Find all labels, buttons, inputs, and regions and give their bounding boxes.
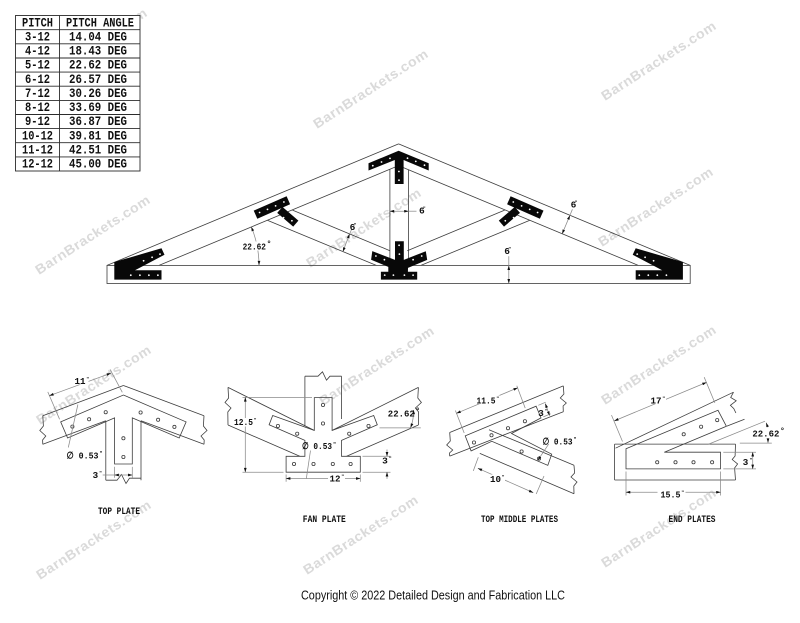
svg-text:4-12: 4-12 [25, 44, 50, 59]
svg-text:″: ″ [662, 396, 665, 402]
svg-text:6-12: 6-12 [25, 72, 50, 87]
svg-text:39.81 DEG: 39.81 DEG [69, 128, 127, 143]
svg-text:7-12: 7-12 [25, 86, 50, 101]
svg-text:22.62: 22.62 [388, 408, 415, 419]
svg-text:8-12: 8-12 [25, 100, 50, 115]
svg-text:FAN PLATE: FAN PLATE [303, 514, 346, 526]
svg-text:26.57 DEG: 26.57 DEG [69, 72, 127, 87]
svg-text:TOP PLATE: TOP PLATE [98, 506, 140, 518]
svg-text:″: ″ [502, 474, 505, 480]
svg-text:″: ″ [354, 222, 357, 228]
svg-text:22.62: 22.62 [752, 428, 779, 439]
svg-text:TOP MIDDLE PLATES: TOP MIDDLE PLATES [481, 514, 558, 526]
svg-text:12.5: 12.5 [234, 417, 253, 428]
svg-text:9-12: 9-12 [25, 114, 50, 129]
svg-text:22.62 DEG: 22.62 DEG [69, 58, 127, 73]
svg-text:″: ″ [496, 396, 499, 402]
svg-text:°: ° [415, 407, 420, 416]
svg-text:18.43 DEG: 18.43 DEG [69, 44, 127, 59]
svg-text:″: ″ [508, 247, 511, 253]
svg-text:∅ 0.53: ∅ 0.53 [302, 441, 332, 452]
svg-text:″: ″ [575, 200, 578, 206]
svg-text:Copyright © 2022 Detailed Desi: Copyright © 2022 Detailed Design and Fab… [301, 588, 565, 603]
svg-text:END PLATES: END PLATES [669, 514, 716, 526]
svg-text:17: 17 [651, 395, 662, 406]
svg-text:∅ 0.53: ∅ 0.53 [67, 451, 99, 462]
svg-text:PITCH: PITCH [22, 16, 53, 31]
svg-text:3: 3 [743, 457, 749, 468]
svg-text:5-12: 5-12 [25, 58, 50, 73]
svg-text:″: ″ [99, 471, 102, 477]
svg-text:3-12: 3-12 [25, 29, 50, 44]
svg-text:″: ″ [100, 451, 103, 457]
svg-text:″: ″ [389, 456, 392, 462]
svg-text:22.62: 22.62 [243, 241, 267, 252]
svg-text:3: 3 [538, 408, 544, 419]
svg-text:″: ″ [545, 408, 548, 414]
svg-text:11-12: 11-12 [22, 142, 53, 157]
svg-text:10-12: 10-12 [22, 128, 53, 143]
svg-text:″: ″ [574, 437, 577, 443]
svg-text:3: 3 [382, 455, 388, 466]
svg-text:42.51 DEG: 42.51 DEG [69, 142, 127, 157]
svg-text:°: ° [267, 240, 272, 249]
svg-text:12-12: 12-12 [22, 157, 53, 172]
svg-text:″: ″ [86, 377, 89, 383]
svg-text:″: ″ [254, 418, 257, 424]
svg-text:″: ″ [681, 490, 684, 496]
svg-text:PITCH ANGLE: PITCH ANGLE [66, 16, 134, 31]
svg-text:11: 11 [75, 376, 86, 387]
svg-text:3: 3 [92, 470, 98, 481]
svg-text:30.26 DEG: 30.26 DEG [69, 86, 127, 101]
svg-text:∅ 0.53: ∅ 0.53 [543, 436, 573, 447]
svg-text:10: 10 [490, 474, 501, 485]
svg-text:36.87 DEG: 36.87 DEG [69, 114, 127, 129]
svg-text:″: ″ [333, 442, 336, 448]
svg-text:″: ″ [341, 474, 344, 480]
svg-text:12: 12 [330, 474, 341, 485]
svg-text:45.00 DEG: 45.00 DEG [69, 157, 127, 172]
svg-text:14.04 DEG: 14.04 DEG [69, 29, 127, 44]
svg-text:″: ″ [749, 457, 752, 463]
svg-text:11.5: 11.5 [477, 395, 496, 406]
svg-text:°: ° [780, 427, 785, 436]
svg-text:33.69 DEG: 33.69 DEG [69, 100, 127, 115]
svg-text:15.5: 15.5 [661, 490, 681, 501]
svg-text:″: ″ [423, 206, 426, 212]
